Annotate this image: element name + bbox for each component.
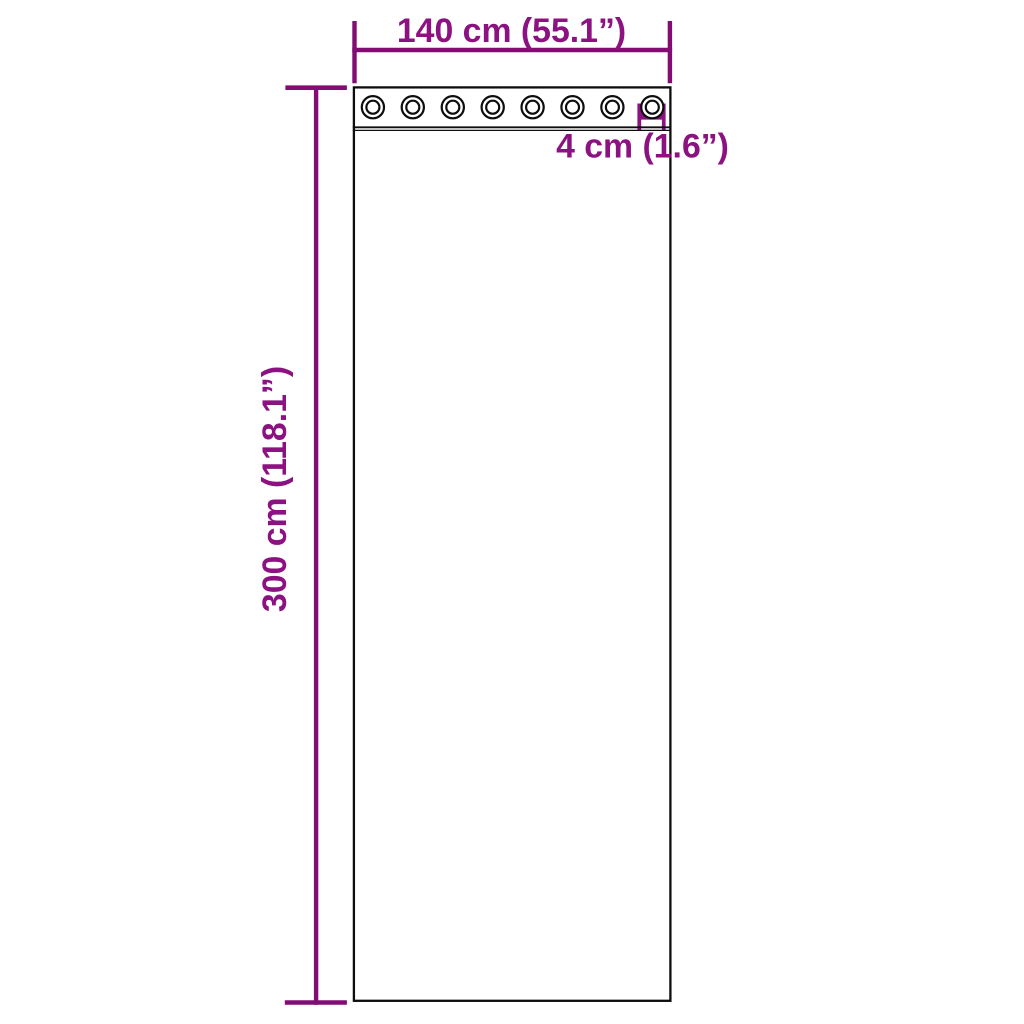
svg-text:140 cm (55.1”): 140 cm (55.1”) [397,12,626,50]
svg-text:4 cm (1.6”): 4 cm (1.6”) [556,127,729,165]
svg-text:300 cm (118.1”): 300 cm (118.1”) [256,366,294,612]
